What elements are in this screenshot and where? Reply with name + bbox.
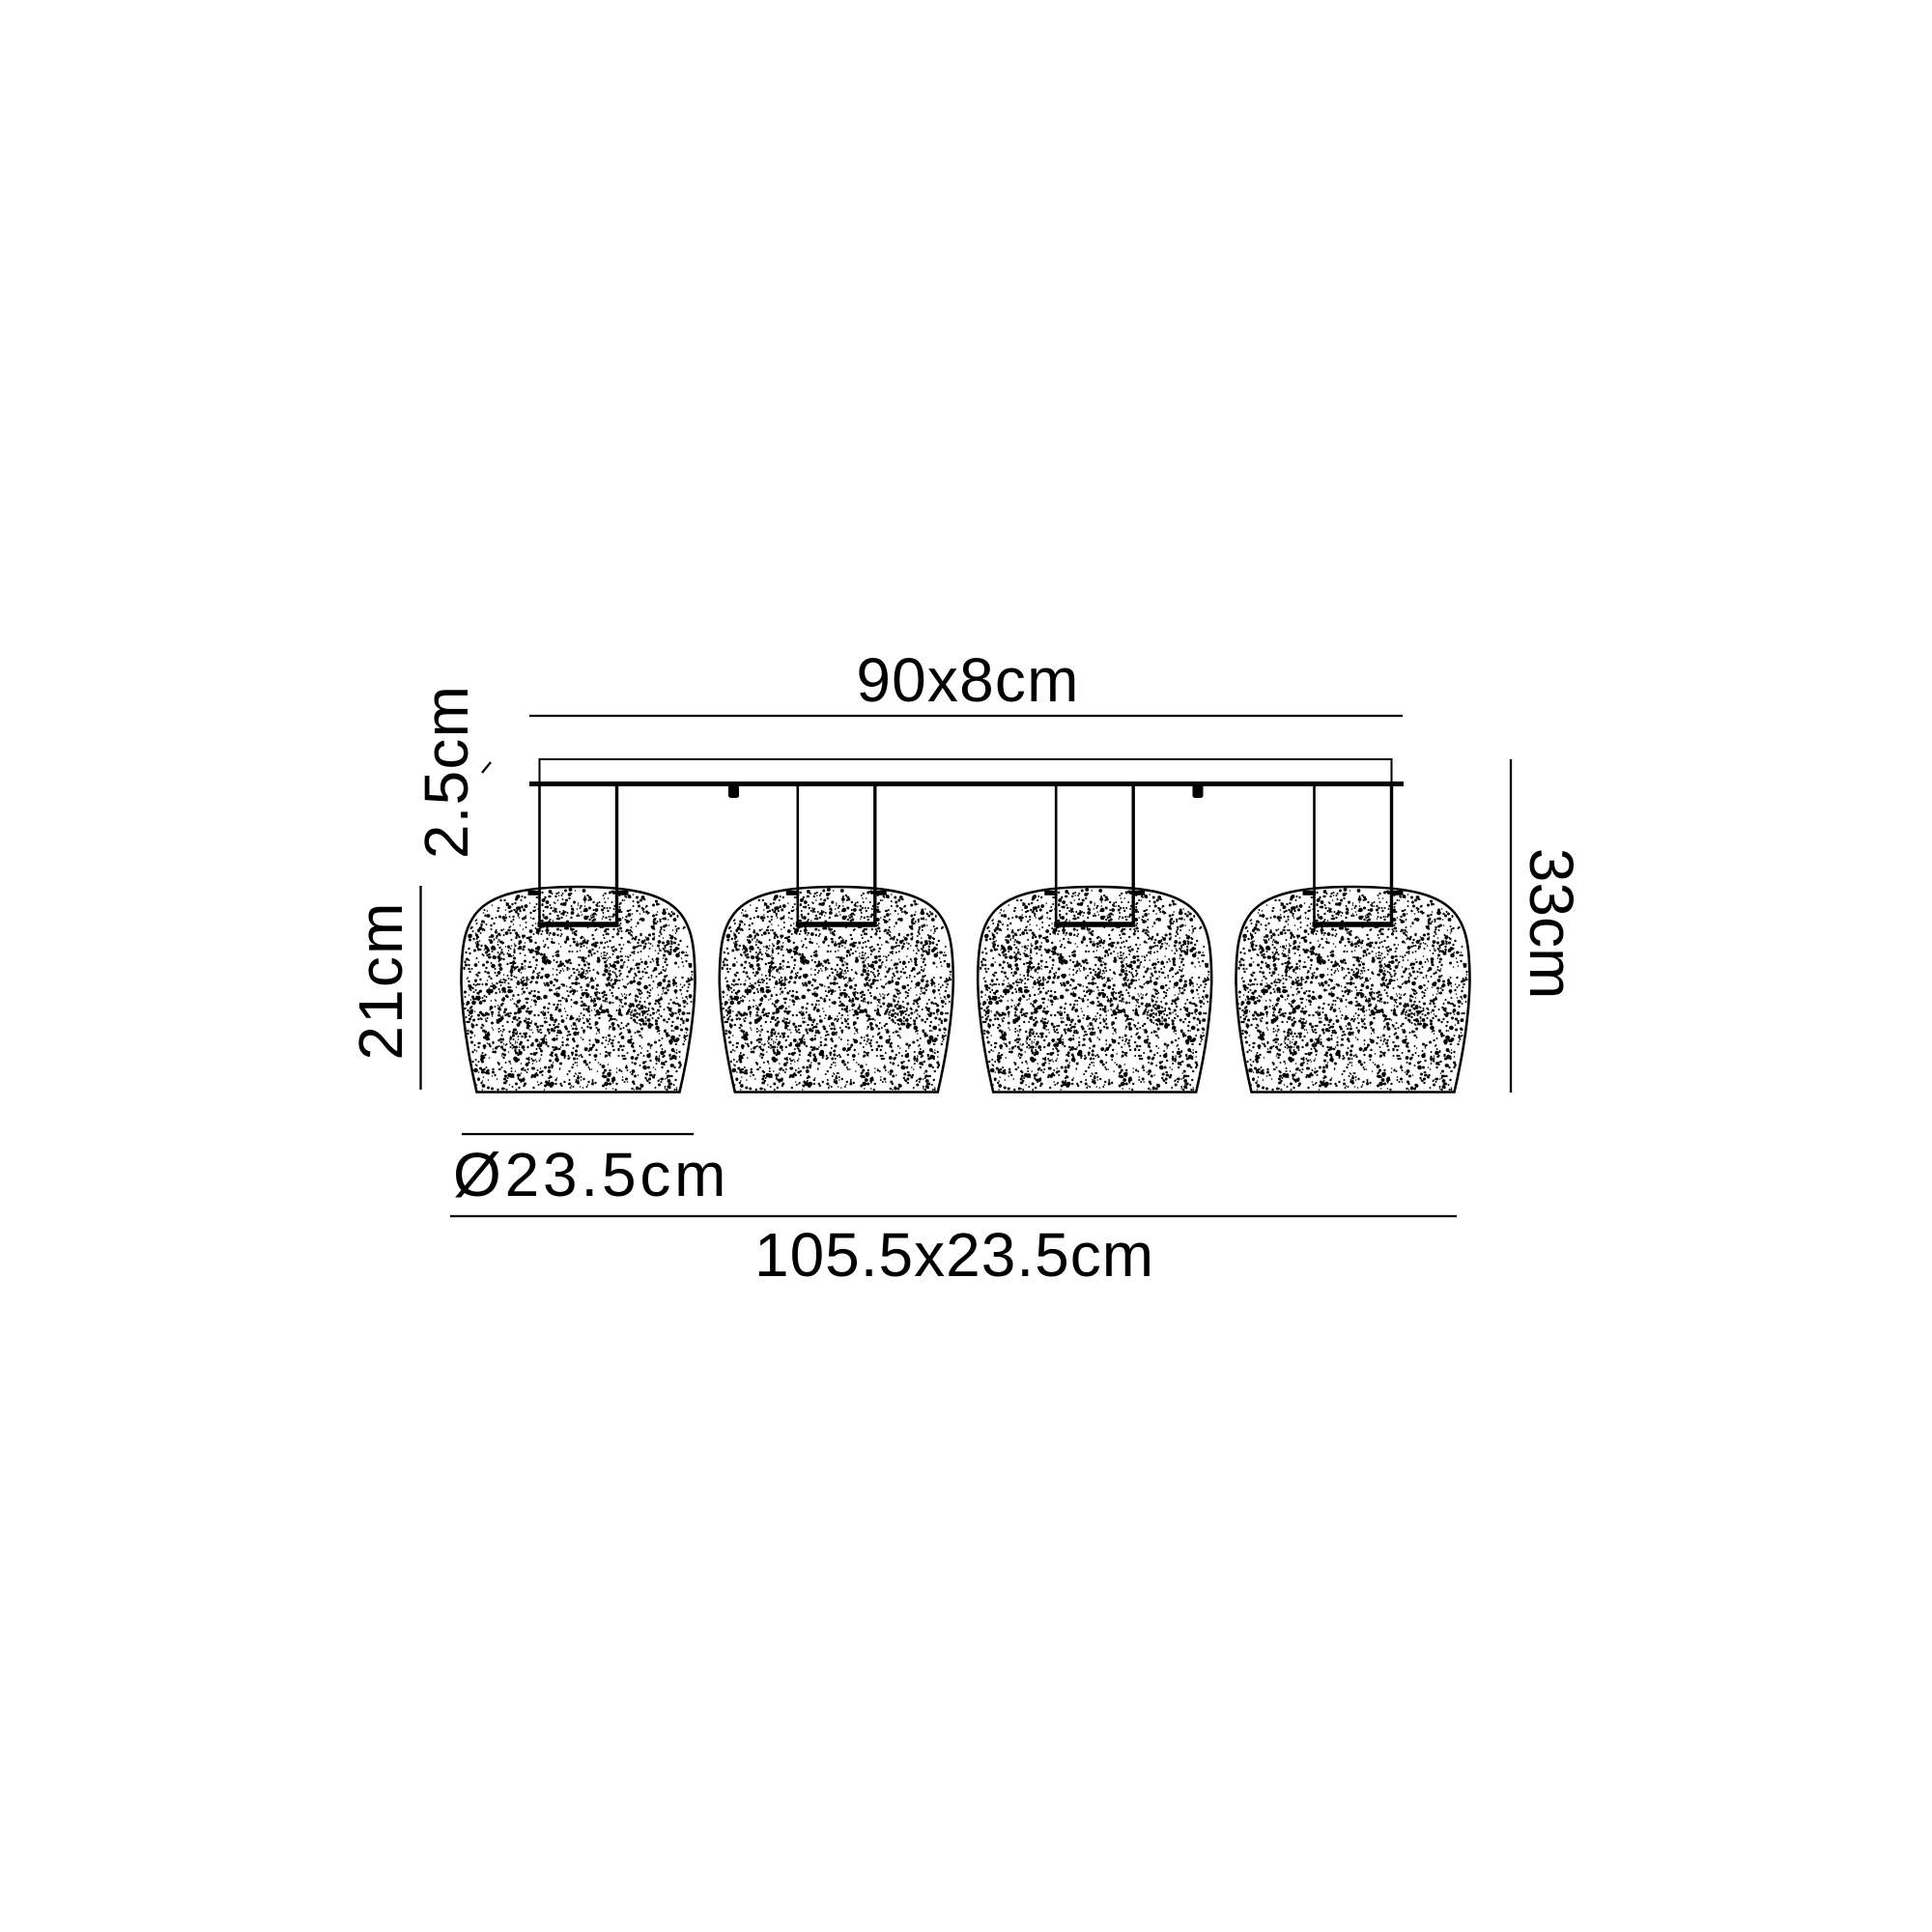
svg-text:Ø23.5cm: Ø23.5cm bbox=[453, 1140, 729, 1209]
svg-text:90x8cm: 90x8cm bbox=[856, 645, 1079, 715]
svg-text:33cm: 33cm bbox=[1517, 848, 1586, 1000]
svg-text:2.5cm: 2.5cm bbox=[412, 685, 481, 859]
svg-text:21cm: 21cm bbox=[346, 900, 415, 1060]
svg-text:105.5x23.5cm: 105.5x23.5cm bbox=[754, 1220, 1154, 1290]
